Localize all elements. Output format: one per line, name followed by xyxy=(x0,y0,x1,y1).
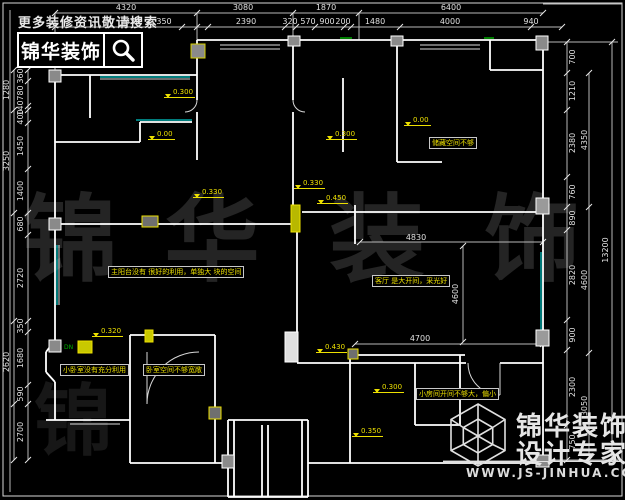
dimension-label: 940 xyxy=(523,18,538,26)
footer-url: WWW.JS-JINHUA.COM xyxy=(466,466,625,480)
dimension-label: 3080 xyxy=(233,4,253,12)
dimension-label: 700 xyxy=(569,49,577,64)
dimension-label: 1480 xyxy=(365,18,385,26)
level-marker: 0.450 xyxy=(317,195,348,204)
level-marker: 0.320 xyxy=(92,328,123,337)
dimension-label: 1400 xyxy=(17,181,25,201)
door-arc xyxy=(293,100,305,112)
dimension-label: 2700 xyxy=(17,422,25,442)
annotation-label: 小卧室没有充分利用 xyxy=(60,364,129,376)
dimension-label: 590 xyxy=(17,386,25,401)
search-icon-cell xyxy=(103,34,141,66)
dimension-label: 1870 xyxy=(316,4,336,12)
pier-block xyxy=(536,330,549,346)
level-marker: 0.300 xyxy=(373,384,404,393)
pier-block xyxy=(49,340,61,352)
dimension-label: 4000 xyxy=(440,18,460,26)
dimension-label: 1680 xyxy=(17,348,25,368)
dimension-label: 680 xyxy=(17,216,25,231)
pier-block xyxy=(49,70,61,82)
stair-direction-note: DN xyxy=(64,344,73,351)
door-arc xyxy=(147,352,199,404)
level-marker: 0.300 xyxy=(164,89,195,98)
annotation-label: 储藏空间不够 xyxy=(429,137,477,149)
annotation-label: 卧室空间不够宽敞 xyxy=(143,364,205,376)
dimension-label: 2820 xyxy=(569,265,577,285)
dimension-label: 350 xyxy=(17,318,25,333)
highlight-block xyxy=(348,349,358,359)
pier-block xyxy=(288,36,300,46)
dimension-label: 2720 xyxy=(17,268,25,288)
level-marker: 0.300 xyxy=(326,131,357,140)
dimension-label: 4350 xyxy=(581,130,589,150)
dimension-label: 320 xyxy=(282,18,297,26)
dimension-label: 2390 xyxy=(236,18,256,26)
dimension-label: 890 xyxy=(569,210,577,225)
dimension-label: 1450 xyxy=(17,136,25,156)
highlight-block xyxy=(78,341,92,353)
annotation-label: 主阳台没有 很好的利用，单独大 块的空间 xyxy=(108,266,244,278)
annotation-label: 客厅 是大开间，采光好 xyxy=(372,275,450,287)
dimension-label: 750 xyxy=(569,434,577,449)
pier-block xyxy=(536,36,548,50)
dimension-label: 360 xyxy=(17,68,25,83)
dimension-label: 3050 xyxy=(581,396,589,416)
floorplan-canvas: 锦 华 装 饰 锦 DN 更多装修资讯敬请搜索 锦华装饰 xyxy=(0,0,625,500)
dimension-label: 1210 xyxy=(569,81,577,101)
dimension-label: 4830 xyxy=(406,234,426,242)
brand-name: 锦华装饰 xyxy=(19,34,103,66)
footer-logo-block: 锦华装饰 设计专家 WWW.JS-JINHUA.COM xyxy=(440,400,625,500)
annotation-label: 小房间开间不够大，偏小 xyxy=(416,388,499,400)
dimension-label: 760 xyxy=(569,184,577,199)
dimension-label: 6400 xyxy=(441,4,461,12)
level-marker: 0.330 xyxy=(193,189,224,198)
dimension-label: 900 xyxy=(319,18,334,26)
dimension-label: 350 xyxy=(156,18,171,26)
pier-block xyxy=(191,44,205,58)
level-marker: 0.00 xyxy=(404,117,431,126)
dimension-label: 400 xyxy=(17,109,25,124)
pier-block xyxy=(536,198,549,214)
dimension-label: 780 xyxy=(17,85,25,100)
dimension-label: 570 xyxy=(300,18,315,26)
highlight-block xyxy=(142,216,158,227)
search-icon xyxy=(110,37,136,63)
level-marker: 0.00 xyxy=(148,131,175,140)
dimension-label: 13200 xyxy=(602,237,610,262)
dimension-label: 200 xyxy=(335,18,350,26)
pier-block xyxy=(49,218,61,230)
highlight-block xyxy=(209,407,221,419)
level-marker: 0.350 xyxy=(352,428,383,437)
dimension-label: 4600 xyxy=(452,284,460,304)
dimension-label: 450 xyxy=(125,18,140,26)
door-arc xyxy=(185,100,197,112)
dimension-label: 1280 xyxy=(3,80,11,100)
highlight-block xyxy=(145,330,153,342)
level-marker: 0.330 xyxy=(294,180,325,189)
pier-block xyxy=(222,455,234,468)
pier-block xyxy=(285,332,298,362)
level-marker: 0.430 xyxy=(316,344,347,353)
dimension-label: 4600 xyxy=(581,270,589,290)
footer-divider xyxy=(443,461,623,462)
dimension-label: 2380 xyxy=(569,133,577,153)
pier-block xyxy=(391,36,403,46)
dimension-label: 4320 xyxy=(116,4,136,12)
wall-line xyxy=(46,372,55,382)
dimension-label: 2620 xyxy=(3,352,11,372)
dimension-label: 4700 xyxy=(410,335,430,343)
dimension-label: 2300 xyxy=(569,377,577,397)
brand-search-box: 锦华装饰 xyxy=(17,32,143,68)
dimension-label: 900 xyxy=(569,327,577,342)
dimension-label: 3250 xyxy=(3,151,11,171)
highlight-block xyxy=(291,205,300,232)
